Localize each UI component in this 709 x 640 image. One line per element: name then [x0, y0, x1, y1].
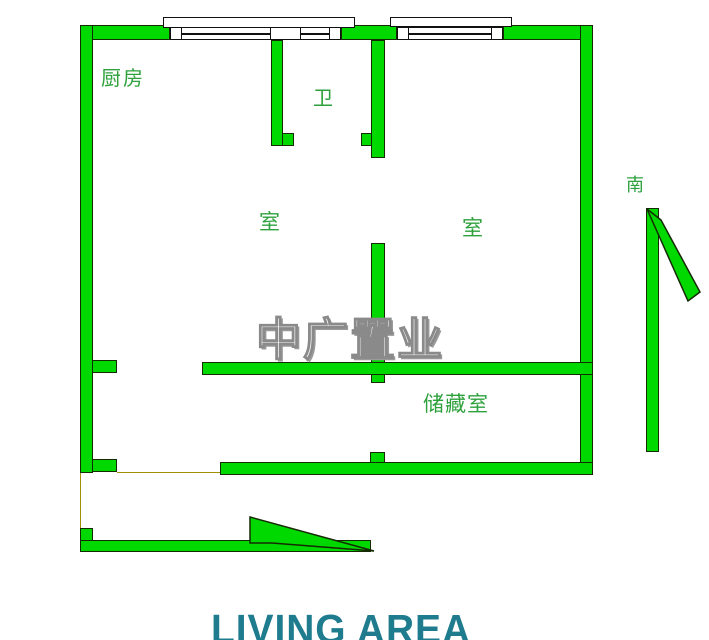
window-b	[397, 27, 503, 40]
wall-left	[80, 25, 93, 473]
left-wall-jamb-lower	[92, 459, 117, 472]
window-b-cap-left	[397, 27, 409, 40]
window-b-glass-line	[398, 33, 502, 35]
wall-bottom	[220, 462, 593, 475]
storage-divider-stub	[370, 452, 385, 463]
window-b-cap-right	[491, 27, 503, 40]
window-a	[170, 27, 341, 40]
bathroom-label: 卫	[313, 88, 335, 110]
window-a-glass-line	[171, 33, 340, 35]
compass-arrow-shaft	[646, 208, 659, 452]
storage-label: 储藏室	[423, 393, 489, 416]
bathroom-wall-right-foot	[361, 133, 372, 146]
window-a-cap-right	[329, 27, 341, 40]
window-a-cap-middle	[270, 27, 301, 40]
bathroom-wall-right	[371, 40, 385, 158]
bathroom-wall-left-foot	[282, 133, 294, 146]
agency-watermark: 中广置业	[256, 303, 444, 368]
wall-right	[580, 25, 593, 475]
window-b-sill	[390, 17, 512, 27]
room-left-label: 室	[259, 211, 282, 234]
floor-plan: 厨房 卫 室 室 储藏室 南 中广置业 LIVING AREA	[0, 0, 709, 640]
living-area-caption: LIVING AREA	[211, 606, 471, 640]
wall-top-left	[80, 25, 170, 40]
left-wall-jamb-upper	[92, 360, 117, 373]
entry-bottom-wall	[80, 540, 371, 552]
south-label: 南	[626, 176, 646, 196]
kitchen-label: 厨房	[101, 68, 145, 90]
entry-left-line	[80, 473, 81, 529]
bathroom-wall-left	[271, 40, 283, 146]
entry-opening-line	[117, 472, 220, 473]
window-a-cap-left	[170, 27, 182, 40]
room-right-label: 室	[462, 217, 485, 240]
